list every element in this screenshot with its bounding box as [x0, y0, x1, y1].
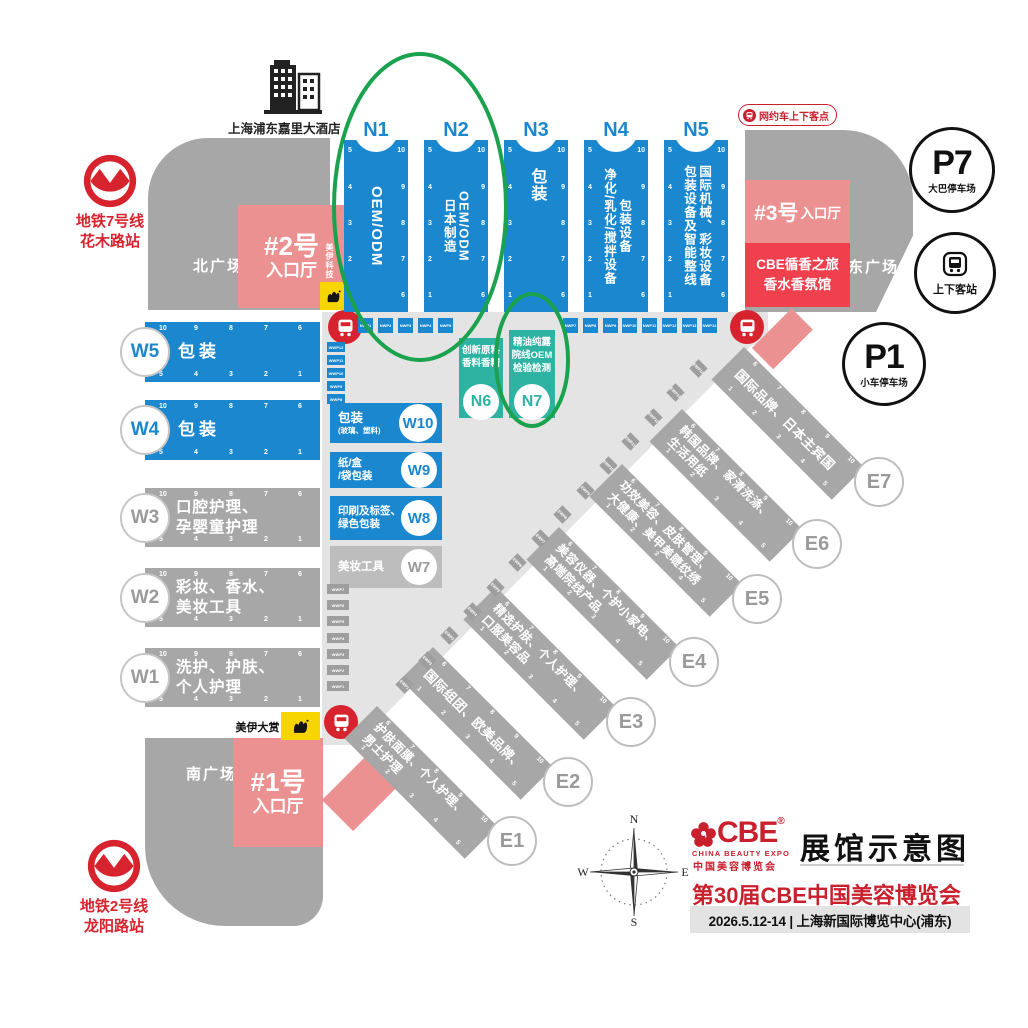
hall-w4: 10594837261包装W4	[145, 400, 320, 460]
ride-hailing-label: 网约车上下客点	[759, 108, 829, 123]
cbe-logo-text: CBE®	[717, 816, 784, 850]
hall-n7-text: 检验检测	[509, 363, 555, 376]
hall-w8-text: 印刷及标签、	[338, 505, 401, 518]
gate-number: 6	[298, 491, 302, 498]
bus-icon	[743, 109, 756, 122]
hotel-label: 上海浦东嘉里大酒店	[228, 118, 341, 137]
service-marker-nwp10: NWP10	[622, 318, 637, 333]
scent-hall: CBE循香之旅 香水香氛馆	[745, 243, 850, 307]
service-marker-wwp2: WWP2	[327, 665, 349, 675]
hall-e6-badge: E6	[792, 519, 842, 569]
hall-e7-text: 国际品牌、日本主宾国	[731, 366, 851, 486]
service-marker-nwp9: NWP9	[603, 318, 618, 333]
compass-n: N	[630, 812, 639, 826]
gate-number: 1	[298, 371, 302, 378]
service-marker-nwp5: NWP5	[438, 318, 453, 333]
service-marker-wwp10: WWP10	[327, 368, 345, 378]
hall-w5-label: 包装	[178, 322, 220, 382]
hall-n1-badge: N1	[354, 108, 398, 152]
gate-number: 2	[264, 449, 268, 456]
gate-number: 3	[229, 371, 233, 378]
hall-w4-label: 包装	[178, 400, 220, 460]
gate-number: 1	[298, 536, 302, 543]
metro2-line1: 地铁2号线	[64, 897, 164, 917]
dropoff-station: 上下客站	[914, 232, 996, 314]
meiyi-tech-label: 美伊科技	[324, 243, 335, 279]
compass-s: S	[631, 915, 638, 927]
hall-n1: 51049382716OEM/ODMN1	[344, 108, 408, 312]
date-venue-bar: 2026.5.12-14 | 上海新国际博览中心(浦东)	[690, 906, 970, 933]
meiyi-award-label: 美伊大赏	[234, 717, 281, 736]
hall-w9-text: 纸/盒	[338, 457, 372, 470]
parking-p7: P7 大巴停车场	[909, 127, 995, 213]
service-marker-wwp1: WWP1	[327, 681, 349, 691]
hall-w7-text: 美妆工具	[338, 560, 384, 574]
hall-n4: 51049382716净化/乳化/搅拌设备包装设备N4	[584, 108, 648, 312]
cbe-logo-word: CBE	[717, 816, 777, 849]
hall-w10-text: (玻璃、塑料)	[338, 426, 381, 435]
hall-n2-text: OEM/ODM	[457, 191, 471, 262]
hall-n7-text: 精油纯露	[509, 337, 555, 350]
hall-n6: 创新原料香料香精N6	[459, 338, 503, 418]
meiyi-logo-icon	[291, 717, 310, 736]
hall-n2-badge: N2	[434, 108, 478, 152]
scent-hall-line2: 香水香氛馆	[764, 275, 832, 295]
hall-w3-label: 口腔护理、孕婴童护理	[176, 488, 259, 547]
service-marker-nwp11: NWP11	[642, 318, 657, 333]
hall-w5-text: 包装	[178, 341, 220, 362]
hall-w8-text: 绿色包装	[338, 518, 401, 531]
hall-n1-text: OEM/ODM	[368, 186, 384, 266]
service-marker-wwp8: WWP8	[327, 394, 345, 404]
bus-stop-icon	[328, 310, 362, 344]
hall-e2-badge: E2	[543, 757, 593, 807]
metro7-line2: 花木路站	[60, 232, 160, 252]
hall-n4-badge: N4	[594, 108, 638, 152]
metro-logo-icon	[86, 838, 142, 894]
hall-e4-badge: E4	[669, 637, 719, 687]
hall-n3-badge: N3	[514, 108, 558, 152]
bus-stop-icon	[730, 310, 764, 344]
cbe-logo-sub2: 中国美容博览会	[693, 858, 777, 873]
hall-w4-badge: W4	[120, 405, 170, 455]
hall-n2-text: 日本制造	[442, 199, 455, 253]
hall-n2-label: 日本制造OEM/ODM	[424, 140, 488, 312]
hall-n5-label: 包装设备及智能整线国际机械、彩妆设备	[664, 140, 728, 312]
hall-w1-badge: W1	[120, 653, 170, 703]
service-marker-wwp9: WWP9	[327, 381, 345, 391]
entrance-hall-1: #1号 入口厅	[233, 738, 323, 847]
meiyi-tech-badge	[320, 282, 346, 310]
gate-number: 10	[159, 325, 167, 332]
gate-number: 1	[298, 696, 302, 703]
shuttle-icon	[941, 250, 969, 278]
service-marker-nwp2: NWP2	[378, 318, 393, 333]
hall-w8: 印刷及标签、绿色包装W8	[330, 496, 442, 540]
hall-w3-text: 孕婴童护理	[176, 518, 259, 537]
metro-logo-icon	[82, 153, 138, 209]
gate-number: 8	[229, 403, 233, 410]
hall-w5-badge: W5	[120, 327, 170, 377]
metro7-line1: 地铁7号线	[60, 212, 160, 232]
hall-w1: 10594837261洗护、护肤、个人护理W1	[145, 648, 320, 707]
gate-number: 2	[264, 536, 268, 543]
service-marker-wwp11: WWP11	[327, 355, 345, 365]
hall-n4-label: 净化/乳化/搅拌设备包装设备	[584, 140, 648, 312]
service-marker-nwp3: NWP3	[398, 318, 413, 333]
gate-number: 1	[298, 449, 302, 456]
gate-number: 2	[264, 371, 268, 378]
metro2-line2: 龙阳路站	[64, 917, 164, 937]
compass-e: E	[681, 865, 688, 879]
service-marker-nwp1: NWP1	[358, 318, 373, 333]
meiyi-logo-icon	[325, 288, 342, 305]
map-title: 展馆示意图	[800, 824, 970, 868]
gate-number: 7	[264, 491, 268, 498]
hall-n1-label: OEM/ODM	[344, 140, 408, 312]
hall-n7: 精油纯露院线OEM检验检测N7	[509, 330, 555, 418]
hall-w8-badge: W8	[401, 500, 437, 536]
hall-w10-badge: W10	[399, 404, 437, 442]
plaza-north-label: 北广场	[193, 255, 244, 276]
gate-number: 10	[159, 491, 167, 498]
hall-w8-label: 印刷及标签、绿色包装	[338, 496, 401, 540]
cbe-logo-sub1: CHINA BEAUTY EXPO	[692, 849, 790, 858]
hall-w2-text: 美妆工具	[176, 598, 275, 617]
hall-w10-text: 包装	[338, 411, 381, 427]
hall-n6-text: 创新原料	[459, 345, 503, 358]
gate-number: 10	[159, 571, 167, 578]
service-marker-wwp6: WWP6	[327, 600, 349, 610]
plaza-east-label: 东广场	[848, 256, 899, 277]
hall-n7-text: 院线OEM	[509, 350, 555, 363]
hall-w9-text: /袋包装	[338, 470, 372, 483]
hall-n5-text: 国际机械、彩妆设备	[697, 165, 710, 287]
gate-number: 8	[229, 325, 233, 332]
hall-n3-text: 包装	[528, 168, 545, 202]
hotel-icon	[262, 58, 324, 116]
gate-number: 1	[298, 616, 302, 623]
service-marker-wwp5: WWP5	[327, 616, 349, 626]
service-marker-wwp12: WWP12	[327, 342, 345, 352]
service-marker-nwp14: NWP14	[702, 318, 717, 333]
hall-e7-badge: E7	[854, 457, 904, 507]
gate-number: 6	[298, 325, 302, 332]
plaza-south-label: 南广场	[186, 763, 237, 784]
meiyi-award-badge	[281, 712, 320, 740]
hall-n3: 51049382716包装N3	[504, 108, 568, 312]
hall-w1-text: 洗护、护肤、	[176, 658, 275, 677]
hall-n6-label: 创新原料香料香精	[459, 345, 503, 371]
entrance-2-line1: #2号	[264, 232, 319, 261]
parking-p1-id: P1	[864, 340, 904, 374]
gate-number: 6	[298, 571, 302, 578]
entrance-1-line2: 入口厅	[253, 797, 304, 817]
hall-w9-label: 纸/盒/袋包装	[338, 452, 372, 488]
metro2-label: 地铁2号线 龙阳路站	[64, 897, 164, 936]
cbe-logo-reg: ®	[777, 816, 783, 827]
gate-number: 10	[159, 403, 167, 410]
hall-n2: 51049382716日本制造OEM/ODMN2	[424, 108, 488, 312]
dropoff-label: 上下客站	[933, 281, 977, 297]
hall-n5-badge: N5	[674, 108, 718, 152]
entrance-1-line1: #1号	[251, 768, 306, 797]
parking-p7-id: P7	[932, 146, 972, 180]
entrance-3-big: #3号	[754, 197, 798, 227]
hall-w7-label: 美妆工具	[338, 546, 384, 588]
hall-w5: 10594837261包装W5	[145, 322, 320, 382]
hall-n4-text: 包装设备	[617, 199, 630, 253]
service-marker-nwp8: NWP8	[583, 318, 598, 333]
hall-w1-label: 洗护、护肤、个人护理	[176, 648, 275, 707]
hall-w3-badge: W3	[120, 493, 170, 543]
gate-number: 10	[159, 651, 167, 658]
hall-w1-text: 个人护理	[176, 678, 275, 697]
hall-n5: 51049382716包装设备及智能整线国际机械、彩妆设备N5	[664, 108, 728, 312]
parking-p1-label: 小车停车场	[860, 375, 908, 389]
service-marker-nwp12: NWP12	[662, 318, 677, 333]
hall-w3-text: 口腔护理、	[176, 498, 259, 517]
parking-p1: P1 小车停车场	[842, 322, 926, 406]
hall-e1-badge: E1	[487, 816, 537, 866]
hall-n7-label: 精油纯露院线OEM检验检测	[509, 337, 555, 375]
hall-w2-badge: W2	[120, 573, 170, 623]
hall-w7: 美妆工具W7	[330, 546, 442, 588]
hall-n4-text: 净化/乳化/搅拌设备	[602, 168, 615, 285]
gate-number: 3	[229, 449, 233, 456]
cbe-flower-icon	[690, 820, 717, 849]
hall-n6-badge: N6	[463, 384, 499, 420]
gate-number: 7	[264, 325, 268, 332]
title-underline	[800, 864, 964, 866]
service-marker-nwp13: NWP13	[682, 318, 697, 333]
hall-n5-text: 包装设备及智能整线	[682, 165, 695, 287]
compass-w: W	[577, 865, 589, 879]
hall-w4-text: 包装	[178, 419, 220, 440]
hall-n3-label: 包装	[504, 140, 568, 312]
hall-e5-badge: E5	[732, 574, 782, 624]
hall-w2-text: 彩妆、香水、	[176, 578, 275, 597]
scent-hall-line1: CBE循香之旅	[756, 255, 839, 275]
gate-number: 6	[298, 651, 302, 658]
hall-w2-label: 彩妆、香水、美妆工具	[176, 568, 275, 627]
entrance-2-line2: 入口厅	[266, 261, 317, 281]
hall-w9: 纸/盒/袋包装W9	[330, 452, 442, 488]
hall-w10: 包装(玻璃、塑料)W10	[330, 403, 442, 443]
service-marker-nwp7: NWP7	[563, 318, 578, 333]
entrance-3-small: 入口厅	[800, 202, 841, 222]
service-marker-wwp3: WWP3	[327, 649, 349, 659]
service-marker-wwp7: WWP7	[327, 584, 349, 594]
venue-map: 北广场 东广场 南广场 #2号 入口厅 美伊科技 #3号 入口厅 CBE循香之旅…	[0, 0, 1028, 1028]
hall-n7-badge: N7	[514, 384, 550, 420]
entrance-hall-3: #3号 入口厅	[745, 180, 850, 243]
service-marker-nwp4: NWP4	[418, 318, 433, 333]
parking-p7-label: 大巴停车场	[928, 181, 976, 195]
ride-hailing-badge: 网约车上下客点	[738, 104, 837, 126]
hall-w10-label: 包装(玻璃、塑料)	[338, 403, 381, 443]
gate-number: 7	[264, 403, 268, 410]
compass-icon: N S E W	[577, 812, 692, 927]
hall-w7-badge: W7	[401, 549, 437, 585]
service-marker-wwp4: WWP4	[327, 633, 349, 643]
gate-number: 6	[298, 403, 302, 410]
hall-w9-badge: W9	[401, 452, 437, 488]
hall-w3: 10594837261口腔护理、孕婴童护理W3	[145, 488, 320, 547]
metro7-label: 地铁7号线 花木路站	[60, 212, 160, 251]
hall-e3-badge: E3	[606, 697, 656, 747]
hall-w2: 10594837261彩妆、香水、美妆工具W2	[145, 568, 320, 627]
hall-n6-text: 香料香精	[459, 358, 503, 371]
